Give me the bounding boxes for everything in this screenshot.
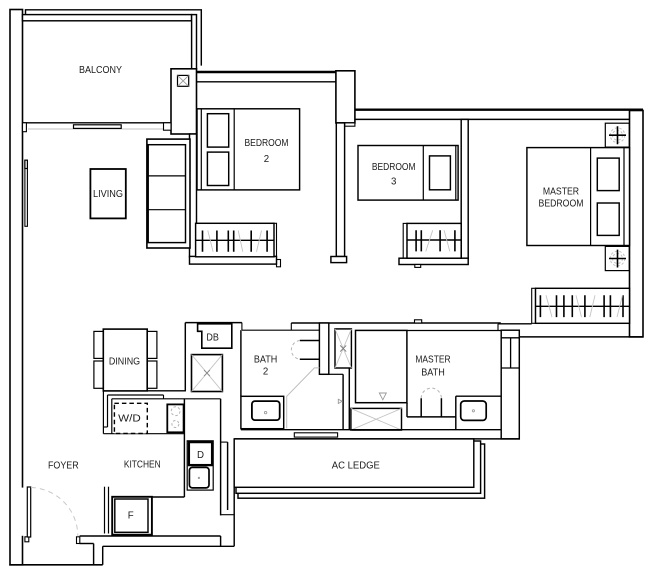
svg-text:BEDROOM: BEDROOM <box>245 138 289 149</box>
svg-text:DINING: DINING <box>109 357 140 368</box>
svg-text:DB: DB <box>206 333 219 344</box>
svg-text:D: D <box>197 450 204 461</box>
svg-text:BEDROOM: BEDROOM <box>539 199 584 210</box>
svg-text:2: 2 <box>263 367 268 378</box>
svg-text:BATH: BATH <box>421 368 445 379</box>
svg-text:2: 2 <box>264 154 269 165</box>
svg-text:F: F <box>128 510 134 521</box>
svg-text:BATH: BATH <box>254 355 277 366</box>
svg-text:KITCHEN: KITCHEN <box>124 459 161 470</box>
svg-text:MASTER: MASTER <box>415 354 450 365</box>
svg-text:3: 3 <box>391 176 396 187</box>
svg-text:BALCONY: BALCONY <box>79 65 122 76</box>
svg-text:LIVING: LIVING <box>93 189 123 200</box>
svg-text:W/D: W/D <box>118 413 141 424</box>
svg-text:AC LEDGE: AC LEDGE <box>332 460 381 471</box>
svg-text:FOYER: FOYER <box>48 460 79 471</box>
svg-text:MASTER: MASTER <box>543 186 579 197</box>
svg-text:BEDROOM: BEDROOM <box>372 162 416 173</box>
